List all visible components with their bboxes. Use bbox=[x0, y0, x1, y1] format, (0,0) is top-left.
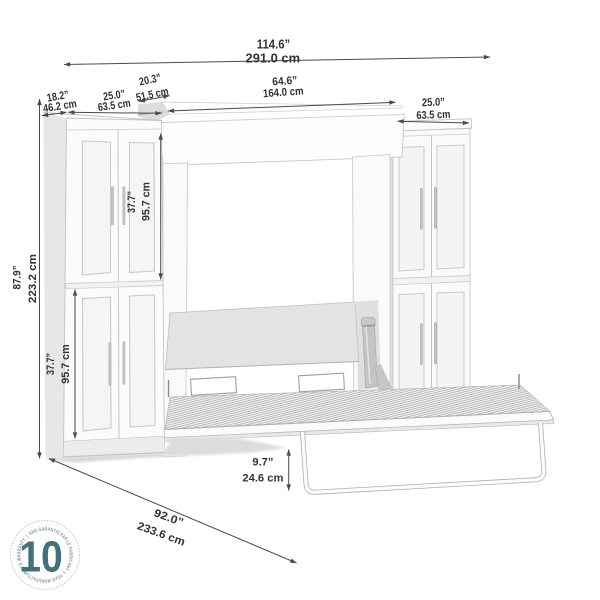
svg-text:63.5 cm: 63.5 cm bbox=[416, 109, 450, 122]
svg-text:24.6 cm: 24.6 cm bbox=[242, 473, 283, 485]
svg-text:37.7”: 37.7” bbox=[45, 353, 57, 375]
svg-text:25.0”: 25.0” bbox=[422, 96, 445, 109]
svg-text:223.2 cm: 223.2 cm bbox=[27, 254, 39, 303]
svg-text:37.7”: 37.7” bbox=[126, 191, 138, 213]
svg-text:95.7 cm: 95.7 cm bbox=[141, 182, 153, 221]
svg-text:291.0 cm: 291.0 cm bbox=[246, 51, 301, 66]
svg-text:87.9”: 87.9” bbox=[11, 266, 23, 290]
svg-text:164.0 cm: 164.0 cm bbox=[263, 85, 304, 100]
svg-text:63.5 cm: 63.5 cm bbox=[97, 98, 131, 114]
svg-text:114.6”: 114.6” bbox=[257, 37, 291, 52]
svg-text:20.3”: 20.3” bbox=[138, 72, 162, 88]
svg-text:10: 10 bbox=[19, 533, 63, 582]
svg-text:9.7”: 9.7” bbox=[252, 457, 273, 469]
svg-text:95.7 cm: 95.7 cm bbox=[60, 344, 72, 384]
